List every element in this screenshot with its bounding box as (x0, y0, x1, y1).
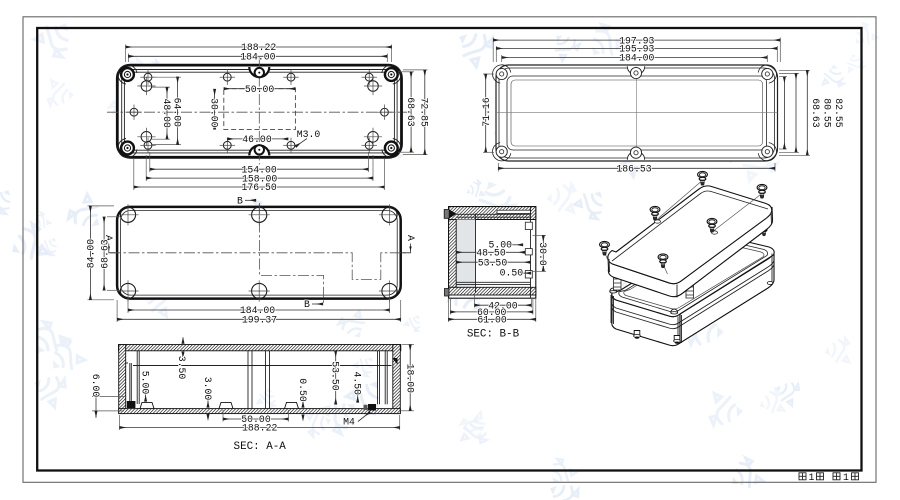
svg-text:50.00: 50.00 (245, 84, 275, 95)
svg-text:199.37: 199.37 (242, 315, 277, 326)
svg-text:SEC: A-A: SEC: A-A (234, 441, 287, 453)
svg-text:3.50: 3.50 (176, 356, 187, 380)
svg-text:184.00: 184.00 (619, 53, 654, 64)
svg-text:0.50: 0.50 (500, 268, 524, 279)
svg-text:176.50: 176.50 (241, 182, 276, 193)
svg-text:46.00: 46.00 (242, 134, 272, 145)
svg-text:68.63: 68.63 (810, 98, 821, 128)
svg-text:61.00: 61.00 (477, 315, 507, 326)
svg-text:184.00: 184.00 (240, 52, 275, 63)
svg-text:M3.0: M3.0 (297, 129, 321, 140)
svg-text:30.00: 30.00 (208, 98, 219, 128)
svg-text:6.00: 6.00 (90, 374, 101, 398)
svg-text:48.00: 48.00 (161, 98, 172, 128)
svg-text:68.63: 68.63 (405, 97, 416, 127)
svg-text:1: 1 (809, 472, 815, 483)
svg-text:68.63: 68.63 (99, 239, 110, 269)
svg-text:186.53: 186.53 (616, 164, 651, 175)
svg-text:53.50: 53.50 (330, 361, 341, 391)
svg-text:82.55: 82.55 (833, 98, 844, 128)
svg-text:80.55: 80.55 (821, 98, 832, 128)
svg-text:30.0: 30.0 (537, 242, 548, 266)
svg-text:4.50: 4.50 (352, 372, 363, 396)
svg-text:84.00: 84.00 (86, 239, 97, 269)
svg-text:0.50: 0.50 (297, 378, 308, 402)
svg-text:M4: M4 (343, 417, 355, 428)
svg-text:71.16: 71.16 (481, 97, 492, 127)
svg-text:72.85: 72.85 (419, 98, 430, 128)
svg-text:A: A (405, 235, 416, 241)
svg-text:5.00: 5.00 (140, 371, 151, 395)
svg-text:SEC: B-B: SEC: B-B (467, 329, 520, 341)
svg-text:18.00: 18.00 (404, 364, 415, 394)
svg-text:B: B (237, 195, 243, 206)
svg-text:64.00: 64.00 (171, 98, 182, 128)
svg-text:3.00: 3.00 (202, 377, 213, 401)
svg-text:1: 1 (843, 472, 849, 483)
svg-text:188.22: 188.22 (242, 423, 277, 434)
svg-text:B: B (304, 299, 310, 310)
